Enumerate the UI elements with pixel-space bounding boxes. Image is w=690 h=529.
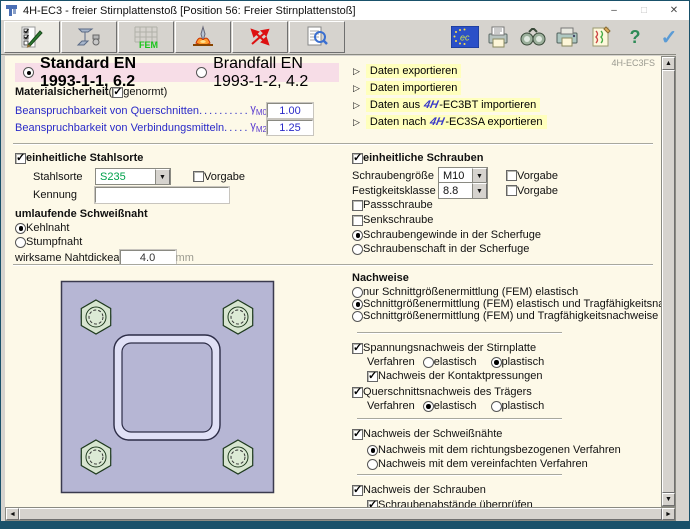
thread-shear-row: Schraubengewinde in der Scherfuge xyxy=(352,229,541,241)
beam-elastic-label: elastisch xyxy=(434,400,477,412)
4h-logo: 4H xyxy=(422,99,441,111)
fem-plastic-proofs-radio[interactable] xyxy=(352,311,363,322)
cross-section-button[interactable] xyxy=(61,21,117,53)
bolt-size-label: Schraubengröße xyxy=(352,170,438,182)
triangle-right-icon: ▷ xyxy=(353,83,360,94)
print-document-icon xyxy=(486,25,512,49)
weld-thickness-label: wirksame Nahtdicke xyxy=(15,252,113,264)
beam-proof-checkbox[interactable] xyxy=(352,387,363,398)
gamma-m0-label: Beanspruchbarkeit von Querschnitten xyxy=(15,105,199,117)
vertical-scroll-thumb[interactable] xyxy=(662,70,675,493)
triangle-right-icon: ▷ xyxy=(353,66,360,77)
kennung-row: Kennung xyxy=(33,187,229,203)
weld-thickness-field[interactable]: 4.0 xyxy=(120,250,176,265)
bolt-spacing-label: Schraubenabstände überprüfen xyxy=(378,499,533,507)
fit-bolt-label: Passschraube xyxy=(363,199,433,211)
bolt-size-value: M10 xyxy=(439,168,472,183)
import-ec3bt-label: Daten aus 4H-EC3BT importieren xyxy=(366,98,540,112)
steel-grade-row: Stahlsorte S235 ▼ Vorgabe xyxy=(33,168,245,185)
contact-pressure-label: Nachweis der Kontaktpressungen xyxy=(378,370,542,382)
material-safety-row: Materialsicherheit ( genormt) xyxy=(15,86,167,98)
countersunk-bolt-checkbox[interactable] xyxy=(352,215,363,226)
norm-selection-bar: Standard EN 1993-1-1, 6.2 Brandfall EN 1… xyxy=(15,63,339,82)
end-plate-elastic-radio[interactable] xyxy=(423,357,434,368)
radio-brandfall-en-label: Brandfall EN 1993-1-2, 4.2 xyxy=(213,56,339,91)
fem-option-row: Schnittgrößenermittlung (FEM) elastisch … xyxy=(352,298,661,310)
horizontal-scroll-thumb[interactable] xyxy=(19,508,662,520)
end-plate-plastic-radio[interactable] xyxy=(491,357,502,368)
steel-vorgabe-label: Vorgabe xyxy=(204,171,245,183)
question-mark-icon: ? xyxy=(630,27,641,48)
window-title: 4H-EC3 - freier Stirnplattenstoß [Positi… xyxy=(23,5,356,17)
weld-proof-row: Nachweis der Schweißnähte xyxy=(352,428,502,440)
bolts-checkbox[interactable] xyxy=(352,153,363,164)
steel-grade-value: S235 xyxy=(96,169,155,184)
gamma-m2-label: Beanspruchbarkeit von Verbindungsmitteln xyxy=(15,122,224,134)
bolt-spacing-checkbox[interactable] xyxy=(367,500,378,508)
end-plate-proof-label: Spannungsnachweis der Stirnplatte xyxy=(363,342,536,354)
end-plate-elastic-label: elastisch xyxy=(434,356,477,368)
beam-elastic-radio[interactable] xyxy=(423,401,434,412)
fem-elastic-only-label: nur Schnittgrößenermittlung (FEM) elasti… xyxy=(363,286,578,298)
module-label: 4H-EC3FS xyxy=(611,58,655,68)
genormt-label: genormt) xyxy=(123,86,167,98)
gamma-m0-symbol: γM0 xyxy=(250,103,267,117)
import-data-link[interactable]: ▷ Daten importieren xyxy=(353,81,461,95)
method-label: Verfahren xyxy=(367,356,415,368)
end-plate-method-row: Verfahren elastisch plastisch xyxy=(367,356,544,368)
beam-plastic-radio[interactable] xyxy=(491,401,502,412)
thread-shear-radio[interactable] xyxy=(352,230,363,241)
weld-header: umlaufende Schweißnaht xyxy=(15,208,148,220)
bolts-title: einheitliche Schrauben xyxy=(363,152,483,164)
shank-shear-label: Schraubenschaft in der Scherfuge xyxy=(363,243,529,255)
gamma-m0-field[interactable]: 1.00 xyxy=(267,103,313,118)
fit-bolt-checkbox[interactable] xyxy=(352,200,363,211)
titlebar: 4H-EC3 - freier Stirnplattenstoß [Positi… xyxy=(1,1,689,20)
export-ec3sa-link[interactable]: ▷ Daten nach 4H-EC3SA exportieren xyxy=(353,115,547,129)
svg-text:ec: ec xyxy=(460,33,470,43)
end-plate-plastic-label: plastisch xyxy=(502,356,545,368)
4h-logo: 4H xyxy=(428,116,447,128)
notes-button[interactable] xyxy=(587,24,615,50)
bolt-spacing-row: Schraubenabstände überprüfen xyxy=(367,499,533,507)
chevron-down-icon[interactable]: ▼ xyxy=(155,169,170,184)
gamma-m2-symbol: γM2 xyxy=(250,120,267,134)
import-ec3bt-link[interactable]: ▷ Daten aus 4H-EC3BT importieren xyxy=(353,98,540,112)
weld-flame-icon xyxy=(190,25,216,49)
fillet-weld-row: Kehlnaht xyxy=(15,222,69,234)
window-bottom-edge xyxy=(1,521,689,528)
bolt-size-vorgabe-label: Vorgabe xyxy=(517,170,558,182)
leader-dots: .............. xyxy=(199,105,250,117)
gamma-m2-row: Beanspruchbarkeit von Verbindungsmitteln… xyxy=(15,120,313,135)
gamma-m2-field[interactable]: 1.25 xyxy=(267,120,313,135)
kennung-input[interactable] xyxy=(95,187,229,203)
steel-grade-title: einheitliche Stahlsorte xyxy=(26,152,143,164)
weld-thickness-row: wirksame Nahtdicke a 4.0 mm xyxy=(15,250,194,265)
countersunk-bolt-row: Senkschraube xyxy=(352,214,433,226)
weld-method-directional-row: Nachweis mit dem richtungsbezogenen Verf… xyxy=(367,444,621,456)
fem-option-row: Schnittgrößenermittlung (FEM) und Tragfä… xyxy=(352,310,661,322)
scroll-right-icon[interactable]: ► xyxy=(662,508,675,520)
toolbar: FEM xyxy=(1,20,689,55)
radio-brandfall-en[interactable] xyxy=(196,67,207,78)
weld-simplified-radio[interactable] xyxy=(367,459,378,470)
steel-grade-select[interactable]: S235 ▼ xyxy=(95,168,171,185)
shank-shear-row: Schraubenschaft in der Scherfuge xyxy=(352,243,529,255)
weld-method-simplified-row: Nachweis mit dem vereinfachten Verfahren xyxy=(367,458,588,470)
beam-proof-label: Querschnittsnachweis des Trägers xyxy=(363,386,532,398)
bolt-class-vorgabe-checkbox[interactable] xyxy=(506,185,517,196)
fem-grid-icon: FEM xyxy=(133,25,159,50)
hollow-section-outline xyxy=(114,335,220,440)
loads-button[interactable] xyxy=(232,21,288,53)
checkmark-icon: ✓ xyxy=(661,25,678,50)
genormt-checkbox[interactable] xyxy=(112,87,123,98)
weld-proof-label: Nachweis der Schweißnähte xyxy=(363,428,502,440)
fillet-weld-radio[interactable] xyxy=(15,223,26,234)
steel-grade-label: Stahlsorte xyxy=(33,171,95,183)
maximize-button[interactable]: □ xyxy=(629,1,659,20)
divider xyxy=(357,418,562,420)
end-plate-proof-checkbox[interactable] xyxy=(352,343,363,354)
steel-vorgabe-checkbox[interactable] xyxy=(193,171,204,182)
search-button[interactable] xyxy=(519,24,547,50)
crossed-arrows-icon xyxy=(247,25,273,49)
proofs-title: Nachweise xyxy=(352,272,409,284)
binoculars-icon xyxy=(520,26,546,48)
help-button[interactable]: ? xyxy=(621,24,649,50)
steel-grade-checkbox[interactable] xyxy=(15,153,26,164)
import-data-label: Daten importieren xyxy=(366,81,461,95)
print-preview-button[interactable] xyxy=(485,24,513,50)
steel-grade-header: einheitliche Stahlsorte xyxy=(15,152,143,164)
divider xyxy=(13,143,653,145)
contact-pressure-row: Nachweis der Kontaktpressungen xyxy=(367,370,542,382)
bolt-proof-checkbox[interactable] xyxy=(352,485,363,496)
close-button[interactable]: ✕ xyxy=(659,1,689,20)
input-data-button[interactable] xyxy=(4,21,60,53)
weld-simplified-label: Nachweis mit dem vereinfachten Verfahren xyxy=(378,458,588,470)
app-icon xyxy=(5,4,18,17)
fem-option-row: nur Schnittgrößenermittlung (FEM) elasti… xyxy=(352,286,578,298)
bolt-class-row: Festigkeitsklasse 8.8 ▼ Vorgabe xyxy=(352,182,558,199)
bolt-size-vorgabe-checkbox[interactable] xyxy=(506,170,517,181)
butt-weld-label: Stumpfnaht xyxy=(26,236,82,248)
kennung-label: Kennung xyxy=(33,189,95,201)
bolt-class-select[interactable]: 8.8 ▼ xyxy=(438,182,488,199)
bolt-class-vorgabe-label: Vorgabe xyxy=(517,185,558,197)
leader-dots: ......... xyxy=(224,122,250,134)
method-label: Verfahren xyxy=(367,400,415,412)
weld-proof-checkbox[interactable] xyxy=(352,429,363,440)
divider xyxy=(357,474,562,476)
triangle-right-icon: ▷ xyxy=(353,100,360,111)
export-data-link[interactable]: ▷ Daten exportieren xyxy=(353,64,461,78)
divider xyxy=(357,332,562,334)
scroll-up-icon[interactable]: ▲ xyxy=(662,57,675,70)
bolt-proof-row: Nachweis der Schrauben xyxy=(352,484,486,496)
beam-proof-row: Querschnittsnachweis des Trägers xyxy=(352,386,532,398)
fem-elastic-only-radio[interactable] xyxy=(352,287,363,298)
document-magnifier-icon xyxy=(304,25,330,49)
steel-beam-icon xyxy=(76,25,102,49)
thread-shear-label: Schraubengewinde in der Scherfuge xyxy=(363,229,541,241)
bolt-class-label: Festigkeitsklasse xyxy=(352,185,438,197)
preview-button[interactable] xyxy=(289,21,345,53)
svg-text:FEM: FEM xyxy=(139,40,158,50)
checklist-pencil-icon xyxy=(20,25,44,49)
fem-plastic-proofs-label: Schnittgrößenermittlung (FEM) und Tragfä… xyxy=(363,310,661,322)
butt-weld-row: Stumpfnaht xyxy=(15,236,82,248)
main-panel: 4H-EC3FS Standard EN 1993-1-1, 6.2 Brand… xyxy=(5,56,661,507)
shank-shear-radio[interactable] xyxy=(352,244,363,255)
app-window: 4H-EC3 - freier Stirnplattenstoß [Positi… xyxy=(0,0,690,529)
contact-pressure-checkbox[interactable] xyxy=(367,371,378,382)
fem-elastic-proofs-radio[interactable] xyxy=(352,299,363,310)
fit-bolt-row: Passschraube xyxy=(352,199,433,211)
print-button[interactable] xyxy=(553,24,581,50)
bolt-proof-label: Nachweis der Schrauben xyxy=(363,484,486,496)
butt-weld-radio[interactable] xyxy=(15,237,26,248)
horizontal-scrollbar[interactable]: ◄ ► xyxy=(5,507,676,521)
end-plate-proof-row: Spannungsnachweis der Stirnplatte xyxy=(352,342,536,354)
beam-method-row: Verfahren elastisch plastisch xyxy=(367,400,544,412)
eurocode-button[interactable]: ec xyxy=(451,24,479,50)
proofs-header: Nachweise xyxy=(352,272,409,284)
scroll-down-icon[interactable]: ▼ xyxy=(662,493,675,506)
weld-directional-radio[interactable] xyxy=(367,445,378,456)
weld-button[interactable] xyxy=(175,21,231,53)
chevron-down-icon[interactable]: ▼ xyxy=(472,168,487,183)
window-frame xyxy=(676,20,689,521)
beam-plastic-label: plastisch xyxy=(502,400,545,412)
countersunk-bolt-label: Senkschraube xyxy=(363,214,433,226)
weld-thickness-unit: mm xyxy=(176,252,194,264)
export-data-label: Daten exportieren xyxy=(366,64,461,78)
export-ec3sa-label: Daten nach 4H-EC3SA exportieren xyxy=(366,115,547,129)
scroll-left-icon[interactable]: ◄ xyxy=(6,508,19,520)
fem-elastic-proofs-label: Schnittgrößenermittlung (FEM) elastisch … xyxy=(363,298,661,310)
gamma-m0-row: Beanspruchbarkeit von Querschnitten ....… xyxy=(15,103,313,118)
joint-graphic xyxy=(60,280,276,495)
bolt-class-value: 8.8 xyxy=(439,183,472,198)
triangle-right-icon: ▷ xyxy=(353,117,360,128)
printer-icon xyxy=(554,25,580,49)
radio-standard-en[interactable] xyxy=(23,67,34,78)
weld-directional-label: Nachweis mit dem richtungsbezogenen Verf… xyxy=(378,444,621,456)
material-safety-title: Materialsicherheit xyxy=(15,86,109,98)
bolts-header: einheitliche Schrauben xyxy=(352,152,483,164)
fem-button[interactable]: FEM xyxy=(118,21,174,53)
fillet-weld-label: Kehlnaht xyxy=(26,222,69,234)
eurocode-ec-icon: ec xyxy=(451,26,479,48)
minimize-button[interactable]: – xyxy=(599,1,629,20)
weld-title: umlaufende Schweißnaht xyxy=(15,208,148,220)
chevron-down-icon[interactable]: ▼ xyxy=(472,183,487,198)
divider xyxy=(13,264,653,266)
annotation-icon xyxy=(589,25,613,49)
vertical-scrollbar[interactable]: ▲ ▼ xyxy=(661,56,676,507)
